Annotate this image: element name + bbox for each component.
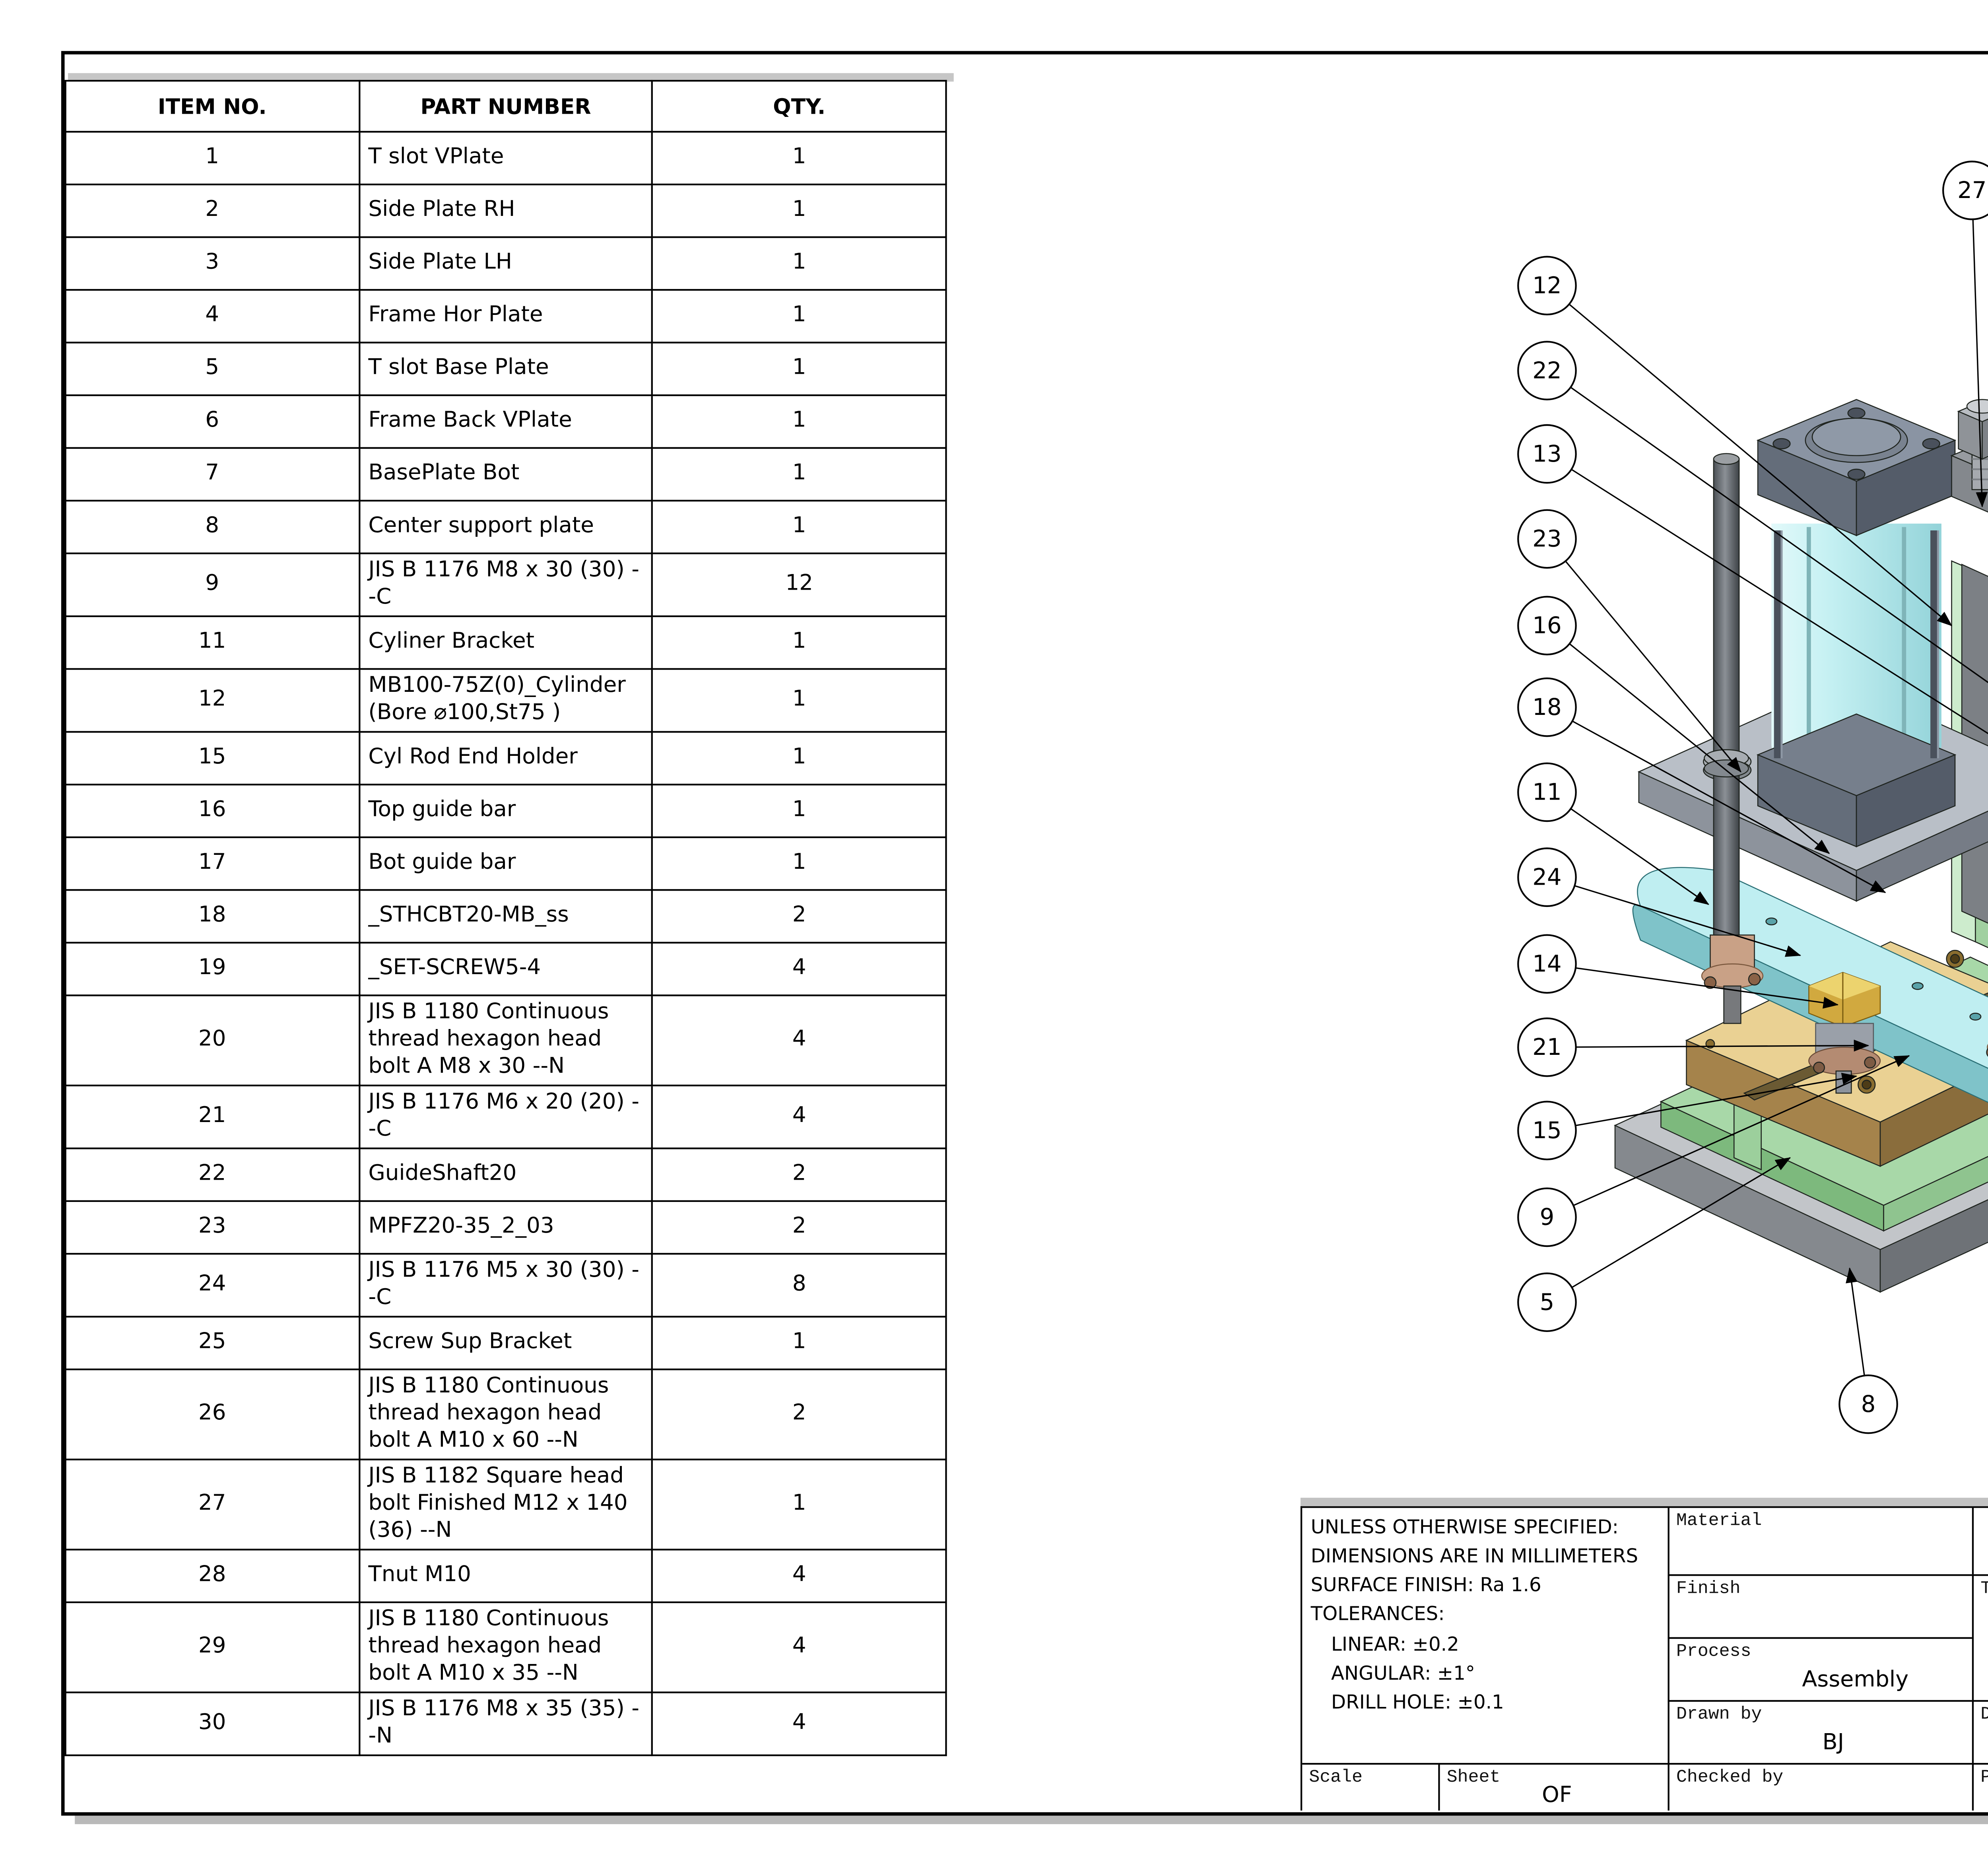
title-label: Title / Part Name xyxy=(1974,1576,1988,1603)
balloon-label: 14 xyxy=(1532,950,1561,977)
sheet-value: OF xyxy=(1542,1783,1572,1809)
balloon-label: 24 xyxy=(1532,864,1561,891)
note-line: LINEAR: ±0.2 xyxy=(1311,1630,1664,1659)
part-number-label: Part Number xyxy=(1974,1765,1988,1792)
material-cell: Material xyxy=(1668,1508,1972,1575)
part-number-cell: Part Number xyxy=(1972,1763,1988,1811)
note-line: SURFACE FINISH: Ra 1.6 xyxy=(1311,1571,1664,1600)
title-block: UNLESS OTHERWISE SPECIFIED: DIMENSIONS A… xyxy=(1301,1506,1988,1810)
balloon-label: 11 xyxy=(1532,779,1561,806)
drawn-by-value: BJ xyxy=(1823,1731,1844,1756)
balloon-label: 23 xyxy=(1532,525,1561,552)
checked-by-cell: Checked by xyxy=(1668,1763,1972,1811)
balloon-label: 22 xyxy=(1532,357,1561,384)
balloon-label: 9 xyxy=(1540,1204,1555,1231)
note-line: ANGULAR: ±1° xyxy=(1311,1659,1664,1688)
balloon-label: 8 xyxy=(1861,1390,1876,1417)
note-line: TOLERANCES: xyxy=(1311,1600,1664,1629)
title-cell: Title / Part Name Air Press Assembly xyxy=(1972,1574,1988,1700)
balloon-label: 15 xyxy=(1532,1117,1561,1144)
balloon-label: 13 xyxy=(1532,440,1561,467)
scale-cell: Scale xyxy=(1302,1763,1438,1811)
company-cell: BJ Mech xyxy=(1972,1508,1988,1575)
note-line: UNLESS OTHERWISE SPECIFIED: xyxy=(1311,1513,1664,1542)
balloon-label: 5 xyxy=(1540,1288,1555,1315)
note-line: DIMENSIONS ARE IN MILLIMETERS xyxy=(1311,1542,1664,1571)
balloon-label: 18 xyxy=(1532,693,1561,720)
material-label: Material xyxy=(1670,1508,1769,1535)
process-cell: Process Assembly xyxy=(1668,1637,1972,1700)
process-value: Assembly xyxy=(1802,1668,1908,1693)
discription-label: Discription xyxy=(1974,1702,1988,1729)
finish-cell: Finish xyxy=(1668,1574,1972,1637)
balloon-label: 16 xyxy=(1532,612,1561,639)
leader-line xyxy=(1850,1268,1864,1376)
sheet-label: Sheet xyxy=(1440,1765,1507,1792)
page: ITEM NO. PART NUMBER QTY. 1T slot VPlate… xyxy=(0,0,1988,1860)
general-notes: UNLESS OTHERWISE SPECIFIED: DIMENSIONS A… xyxy=(1311,1513,1664,1717)
balloon-label: 21 xyxy=(1532,1033,1561,1060)
checked-by-label: Checked by xyxy=(1670,1765,1790,1792)
drawn-by-label: Drawn by xyxy=(1670,1702,1769,1729)
balloon-label: 27 xyxy=(1957,177,1986,204)
process-label: Process xyxy=(1670,1639,1758,1666)
finish-label: Finish xyxy=(1670,1576,1747,1603)
guide-shaft-left xyxy=(1704,454,1748,935)
discription-cell: Discription General Purpose Pneumatic Pr… xyxy=(1972,1700,1988,1763)
pneumatic-cylinder xyxy=(1758,400,1955,847)
drawing-sheet: ITEM NO. PART NUMBER QTY. 1T slot VPlate… xyxy=(61,51,1988,1815)
balloon-label: 12 xyxy=(1532,272,1561,299)
scale-label: Scale xyxy=(1302,1765,1369,1792)
sheet-cell: Sheet OF xyxy=(1438,1763,1668,1811)
machine xyxy=(1615,400,1988,1292)
note-line: DRILL HOLE: ±0.1 xyxy=(1311,1688,1664,1717)
drawn-by-cell: Drawn by BJ xyxy=(1668,1700,1972,1763)
